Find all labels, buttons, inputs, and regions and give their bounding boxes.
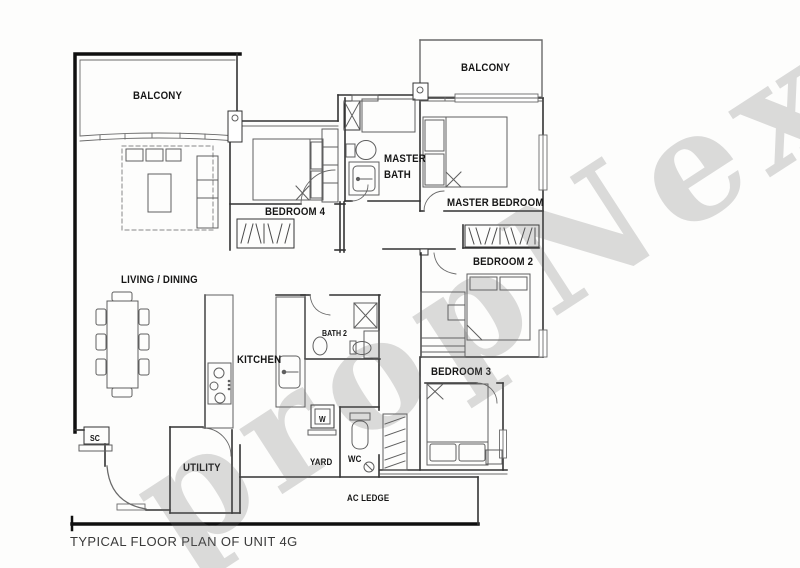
label-bedroom-2: BEDROOM 2 [473, 255, 533, 270]
label-master-bath-line1: MASTER [384, 151, 426, 167]
label-master-bath: MASTER BATH [384, 151, 426, 183]
floor-plan-page: BALCONY BALCONY LIVING / DINING BEDROOM … [0, 0, 800, 568]
label-sc: SC [90, 431, 100, 446]
label-bath-2: BATH 2 [322, 326, 347, 341]
label-utility: UTILITY [183, 461, 221, 476]
label-balcony-right: BALCONY [461, 61, 510, 76]
label-master-bedroom: MASTER BEDROOM [447, 196, 544, 211]
label-bedroom-4: BEDROOM 4 [265, 205, 325, 220]
label-wc: WC [348, 452, 362, 467]
label-kitchen: KITCHEN [237, 353, 281, 368]
label-yard: YARD [310, 455, 332, 470]
label-bedroom-3: BEDROOM 3 [431, 365, 491, 380]
floorplan-drawing [0, 0, 800, 568]
label-washer: W [319, 412, 326, 427]
interior-walls [75, 54, 543, 524]
label-balcony-left: BALCONY [133, 89, 182, 104]
outer-walls [72, 54, 478, 530]
wardrobe-hatching [237, 219, 539, 248]
label-master-bath-line2: BATH [384, 167, 426, 183]
label-ac-ledge: AC LEDGE [347, 491, 389, 506]
label-living-dining: LIVING / DINING [121, 273, 198, 288]
plan-caption: TYPICAL FLOOR PLAN OF UNIT 4G [70, 534, 298, 549]
